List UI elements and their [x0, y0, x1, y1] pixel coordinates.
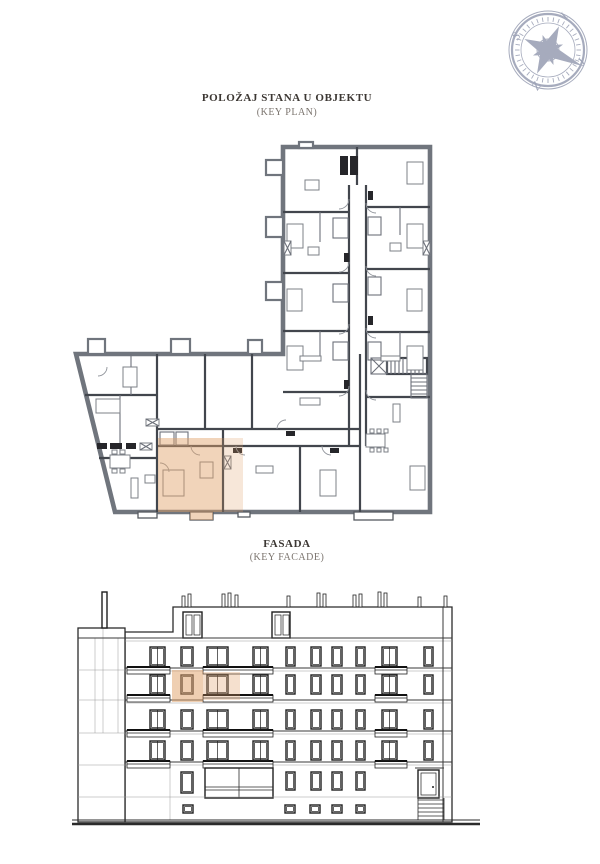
- plan-highlight-overlay: [158, 438, 222, 520]
- compass-rose: I J Z S: [509, 10, 589, 93]
- facade-highlight-overlay: [172, 670, 203, 702]
- plan-highlight-overlay-light: [222, 438, 243, 512]
- drawing-sheet: POLOŽAJ STANA U OBJEKTU (KEY PLAN) FASAD…: [0, 0, 600, 864]
- facade-entrance: [415, 768, 444, 820]
- architectural-canvas: I J Z S: [0, 0, 600, 864]
- facade-drawing: [72, 592, 480, 824]
- key-plan-drawing: [76, 142, 430, 520]
- compass-letter-bottom: Z: [528, 79, 543, 93]
- facade-highlight-overlay-light: [203, 672, 240, 700]
